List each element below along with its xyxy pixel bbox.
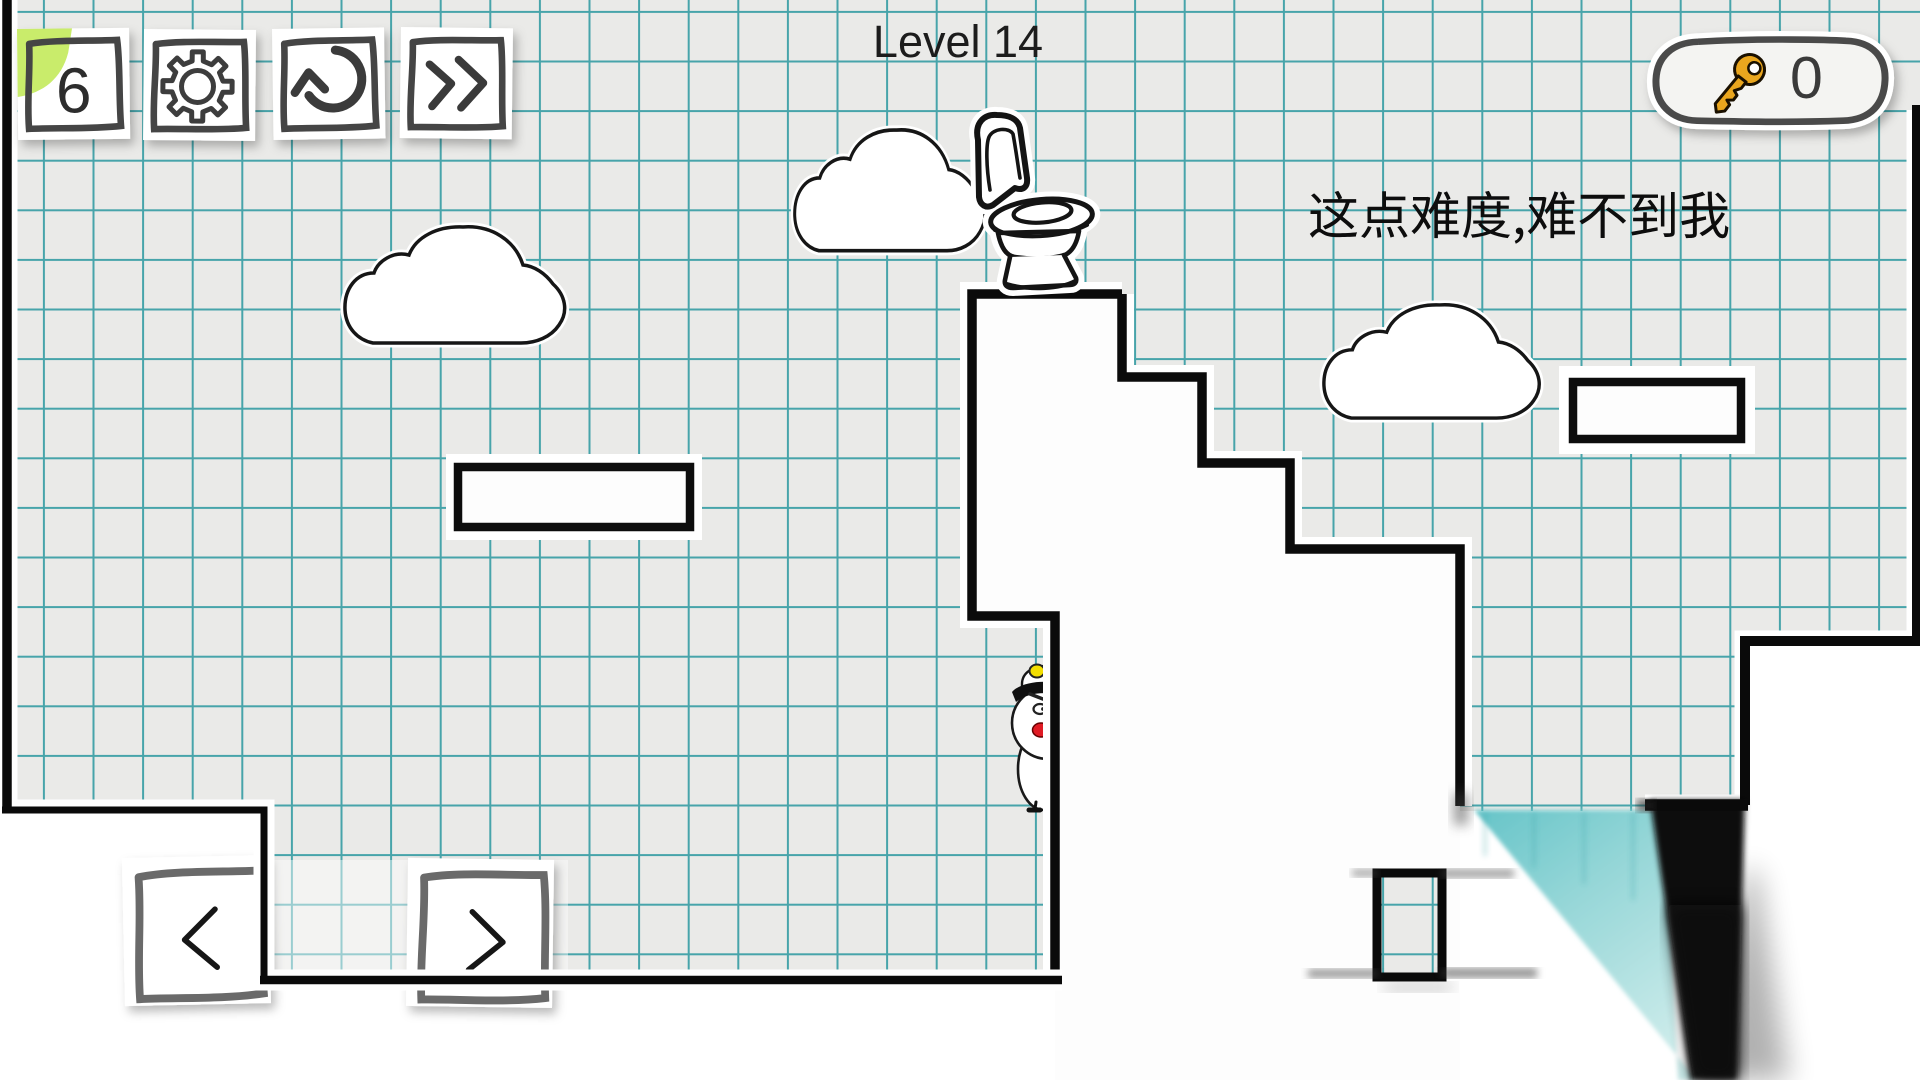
svg-text:6: 6 [55, 54, 91, 126]
svg-text:Level 14: Level 14 [873, 16, 1043, 67]
svg-text:0: 0 [1790, 45, 1823, 111]
